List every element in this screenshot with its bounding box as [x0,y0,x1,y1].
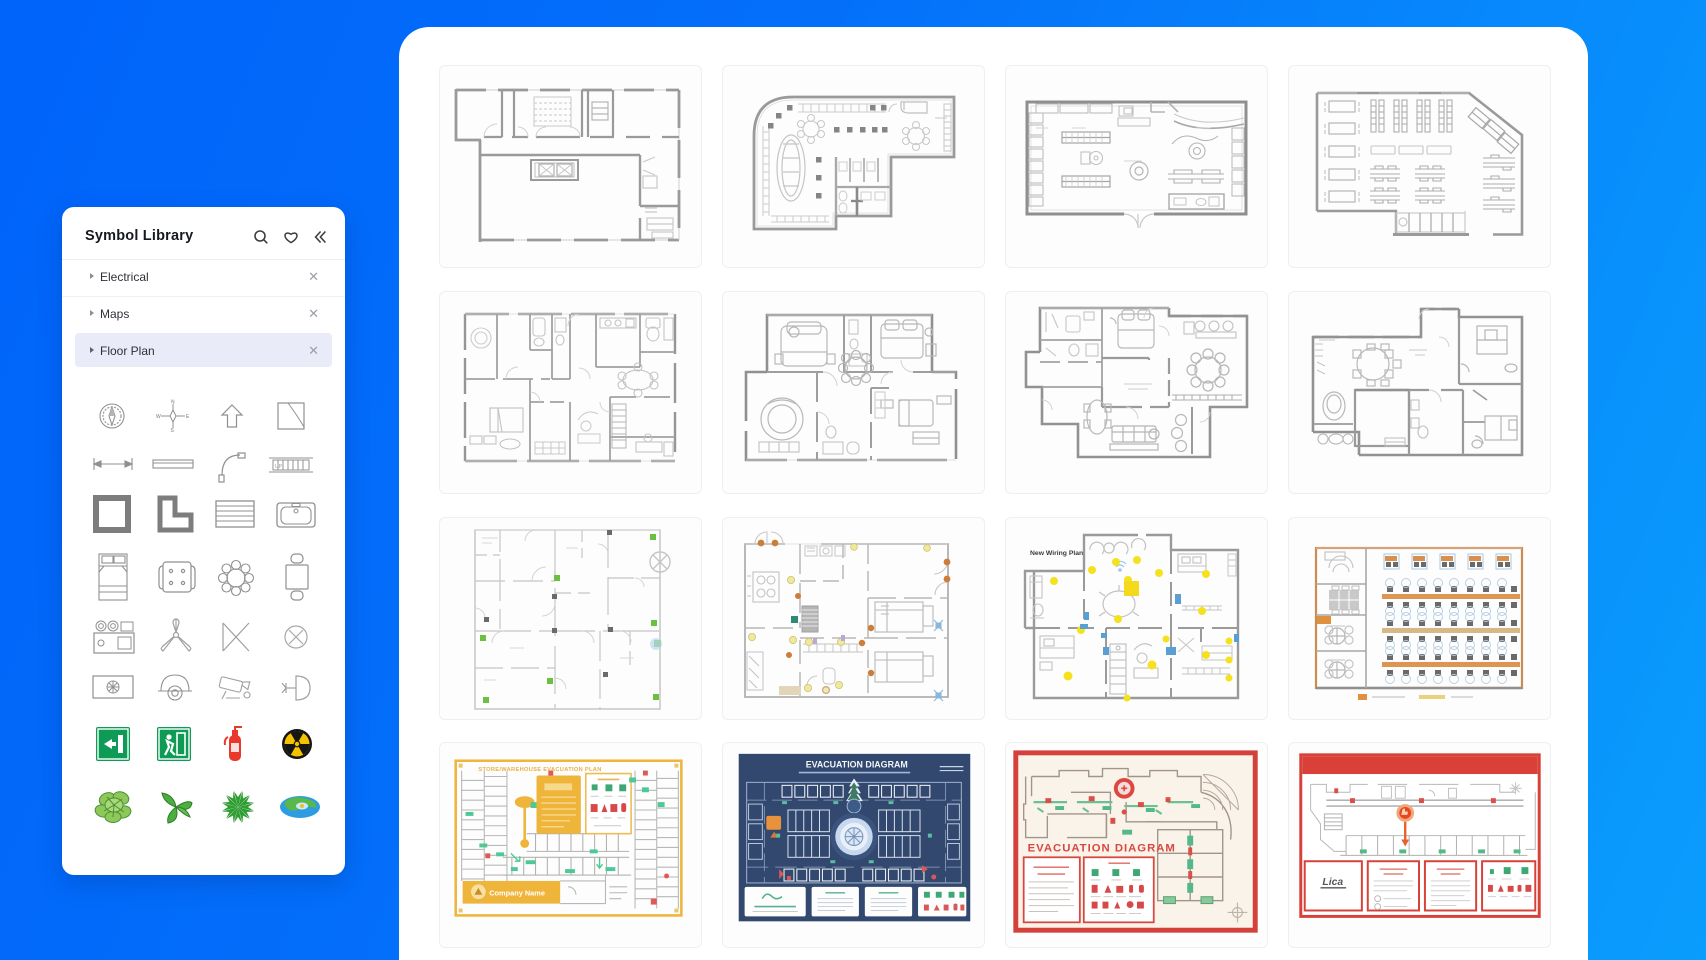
svg-text:EVACUATION DIAGRAM: EVACUATION DIAGRAM [1028,842,1176,854]
svg-text:E: E [186,414,190,420]
svg-text:New Wiring Plan: New Wiring Plan [1030,550,1083,557]
svg-text:STORE/WAREHOUSE EVACUATION PLA: STORE/WAREHOUSE EVACUATION PLAN [478,767,601,773]
svg-text:UP: UP [275,464,283,470]
svg-text:N: N [171,400,175,406]
svg-text:EVACUATION DIAGRAM: EVACUATION DIAGRAM [806,760,908,770]
svg-text:S: S [171,428,175,433]
svg-text:W: W [156,414,161,420]
svg-text:Lica: Lica [1322,877,1343,888]
svg-text:Company Name: Company Name [489,889,545,898]
